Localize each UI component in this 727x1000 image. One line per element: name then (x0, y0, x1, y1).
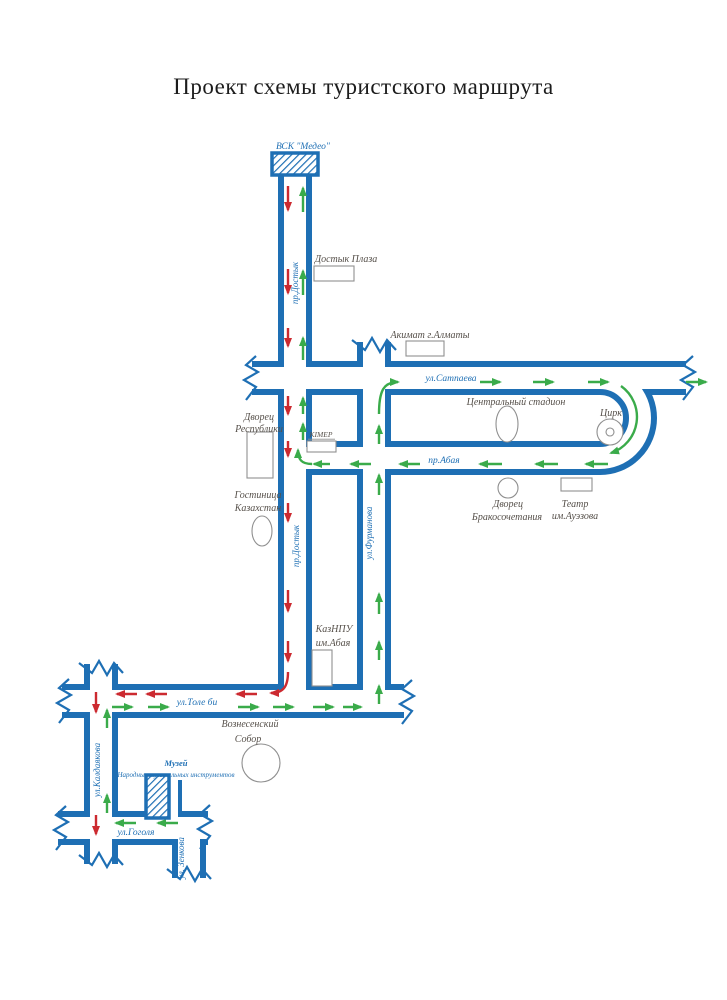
palace-republic-label-2: Республики (234, 424, 283, 435)
akimat-label: Акимат г.Алматы (389, 330, 469, 341)
kaznpu-building (312, 650, 332, 686)
street-label-tole-bi: ул.Толе би (176, 697, 218, 708)
medeo-label: ВСК "Медео" (276, 141, 331, 152)
akimat-building (406, 341, 444, 356)
cathedral-label-1: Вознесенский (222, 719, 279, 730)
hotel-label-2: Казахстан (234, 503, 282, 514)
wedding-palace-label-1: Дворец (492, 499, 523, 510)
street-label-zenkova: ул. Зенкова (176, 837, 186, 880)
museum-label-2: Народных музыкальных инструментов (116, 771, 234, 779)
route-arrows-green (107, 188, 706, 823)
kimep-building (307, 441, 336, 452)
palace-republic-label-1: Дворец (243, 412, 274, 423)
wedding-palace-label-2: Бракосочетания (471, 512, 543, 523)
medeo-terminal (272, 153, 318, 175)
auezov-theatre-building (561, 478, 592, 491)
museum-terminal (146, 775, 169, 818)
street-label-abaya: пр.Абая (428, 455, 459, 466)
street-label-furmanova: ул.Фурманова (364, 506, 374, 560)
stadium-label: Центральный стадион (466, 397, 566, 408)
dostyk-plaza-building (314, 266, 354, 281)
cathedral-label-2: Собор (235, 734, 262, 745)
hotel-kazakhstan-building (252, 516, 272, 546)
central-stadium-building (496, 406, 518, 442)
street-label-satpaeva: ул.Сатпаева (424, 374, 476, 384)
kaznpu-label-1: КазНПУ (315, 624, 354, 635)
route-map: ВСК "Медео" Достык Плаза Акимат г.Алматы… (0, 0, 727, 1000)
circus-building-dot (606, 428, 614, 436)
street-label-gogolya: ул.Гоголя (117, 828, 155, 838)
museum-label-1: Музей (163, 758, 187, 768)
cathedral-building (242, 744, 280, 782)
street-label-dostyk-2: пр.Достык (291, 524, 301, 567)
dostyk-plaza-label: Достык Плаза (314, 254, 378, 265)
theatre-label-1: Театр (562, 499, 589, 510)
hotel-label-1: Гостиница (234, 490, 282, 501)
theatre-label-2: им.Ауэзова (552, 511, 598, 522)
kaznpu-label-2: им.Абая (316, 638, 351, 649)
street-label-kaldayakova: ул.Калдаякова (92, 742, 102, 798)
street-label-dostyk-1: пр.Достык (290, 261, 300, 304)
scanned-route-scheme-page: Проект схемы туристского маршрута (0, 0, 727, 1000)
kimep-label: KIMEP (309, 430, 333, 439)
palace-republic-building (247, 432, 273, 478)
circus-label: Цирк (599, 408, 622, 419)
wedding-palace-building (498, 478, 518, 498)
